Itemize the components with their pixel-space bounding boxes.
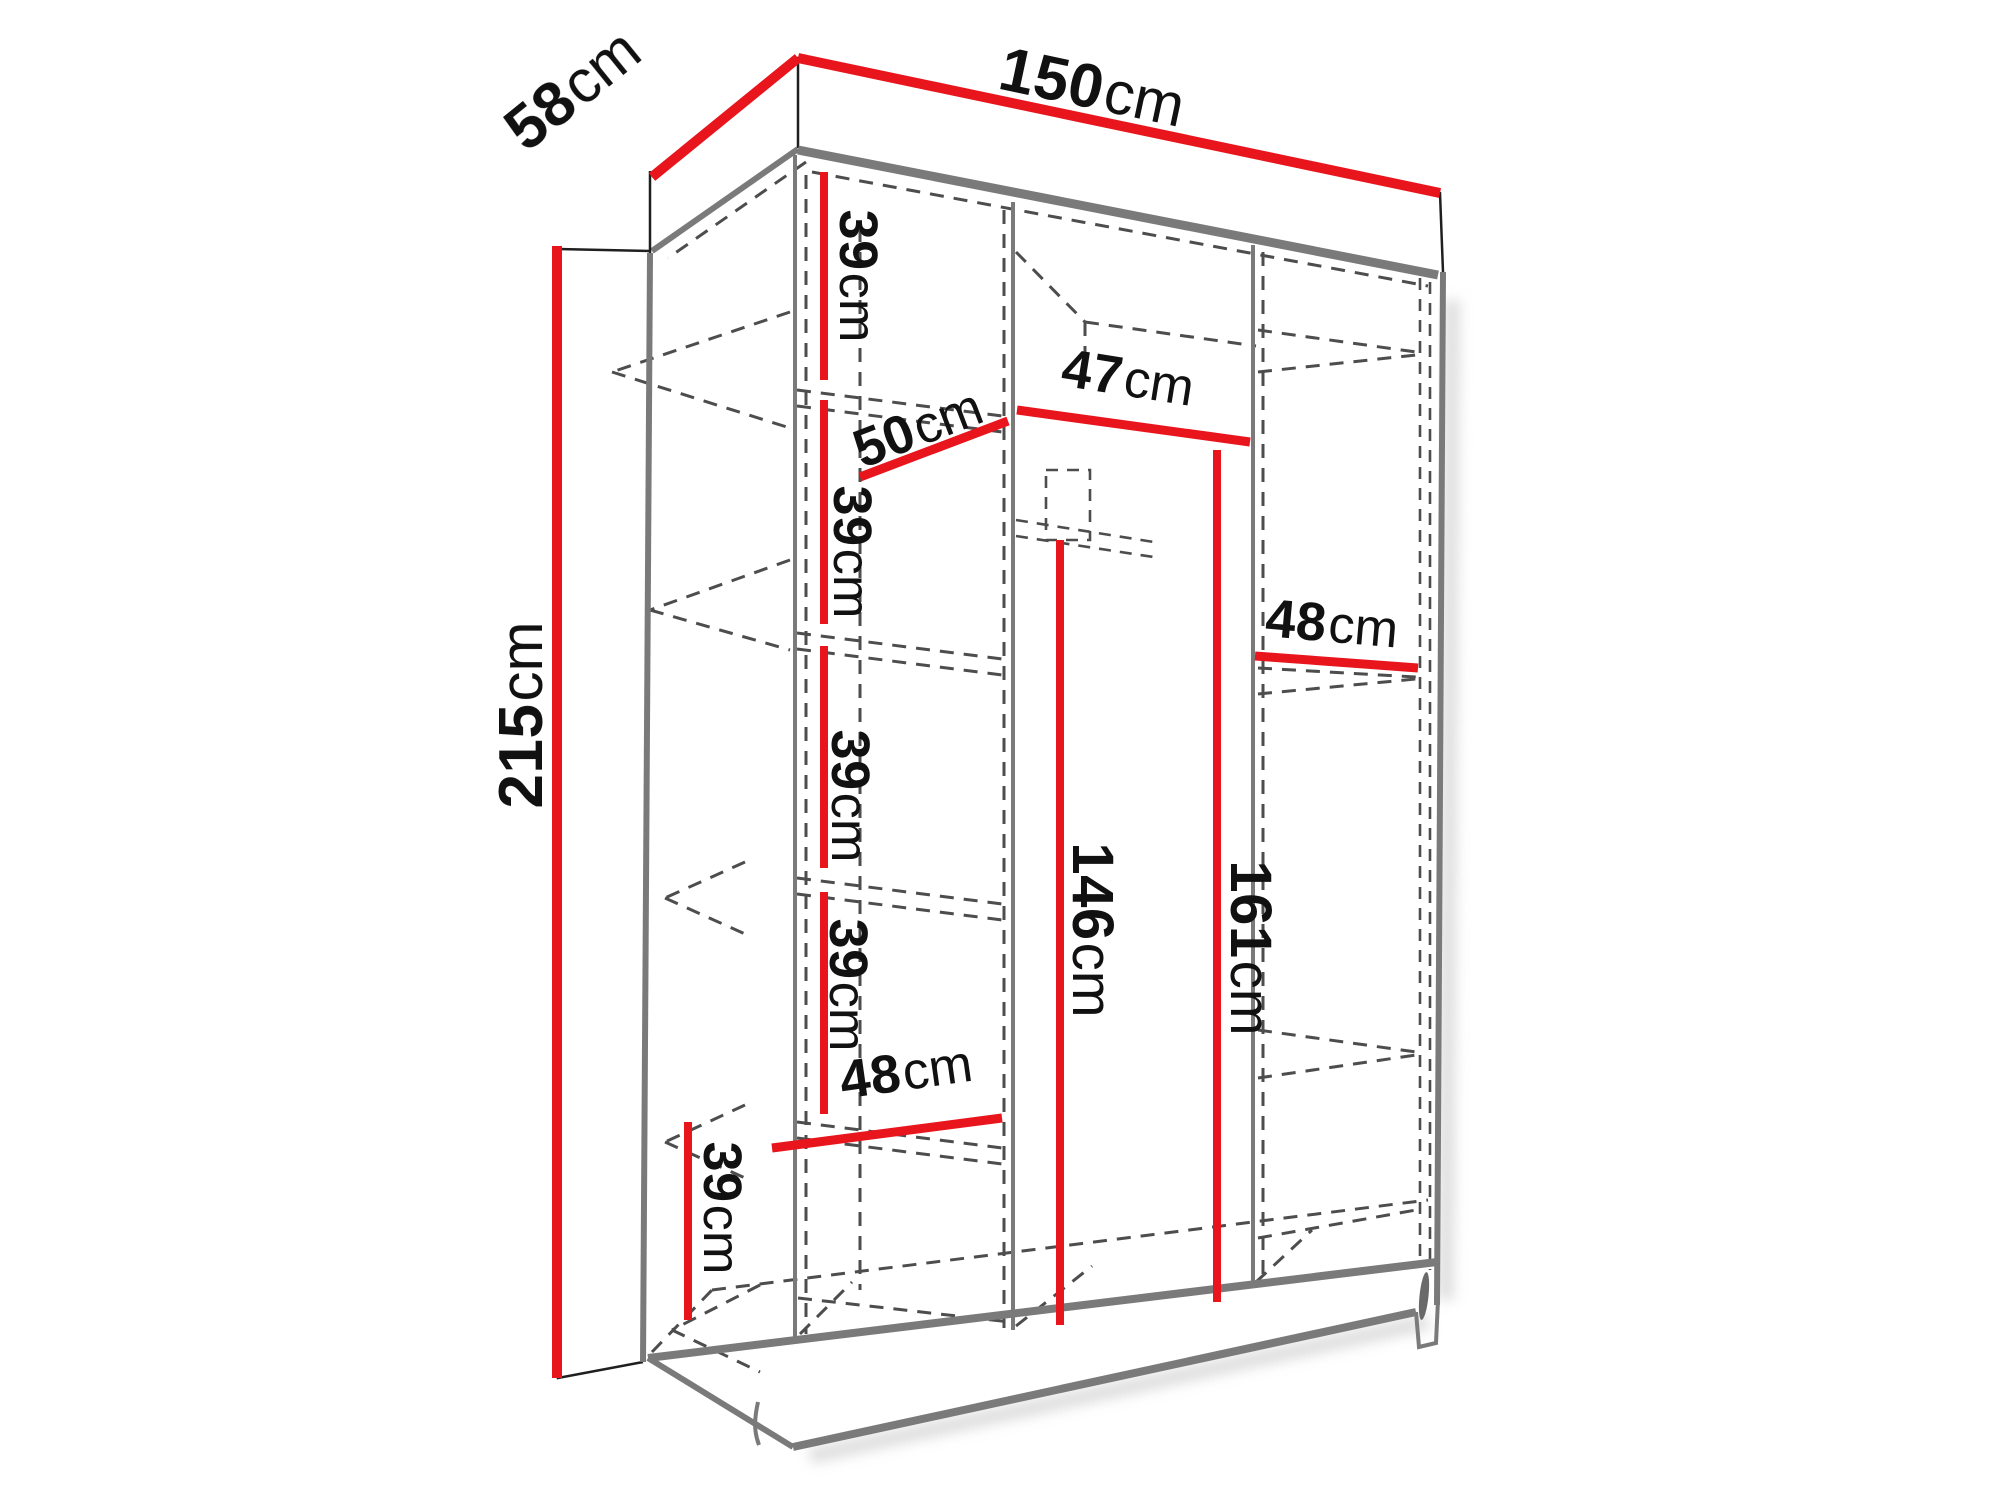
dim-label-middle-rod-height: 146cm [1063, 842, 1121, 1017]
dim-label-left-height: 215cm [491, 621, 553, 808]
dim-label-gap-3: 39cm [823, 730, 877, 863]
dim-label-gap-4: 39cm [821, 919, 875, 1052]
dim-label-bottom-left-gap: 39cm [695, 1142, 749, 1275]
diagram-canvas [0, 0, 2000, 1500]
wardrobe-dimension-diagram: 150cm 58cm 215cm 39cm 39cm 39cm 39cm 39c… [0, 0, 2000, 1500]
left-side-panel-fill [558, 249, 650, 1378]
dim-label-gap-1: 39cm [831, 210, 885, 343]
dim-label-right-shelf-width: 48cm [1263, 591, 1400, 657]
dim-label-gap-2: 39cm [825, 486, 879, 619]
front-body-fill [648, 150, 1438, 1447]
dim-label-right-inner-height: 161cm [1221, 860, 1279, 1035]
